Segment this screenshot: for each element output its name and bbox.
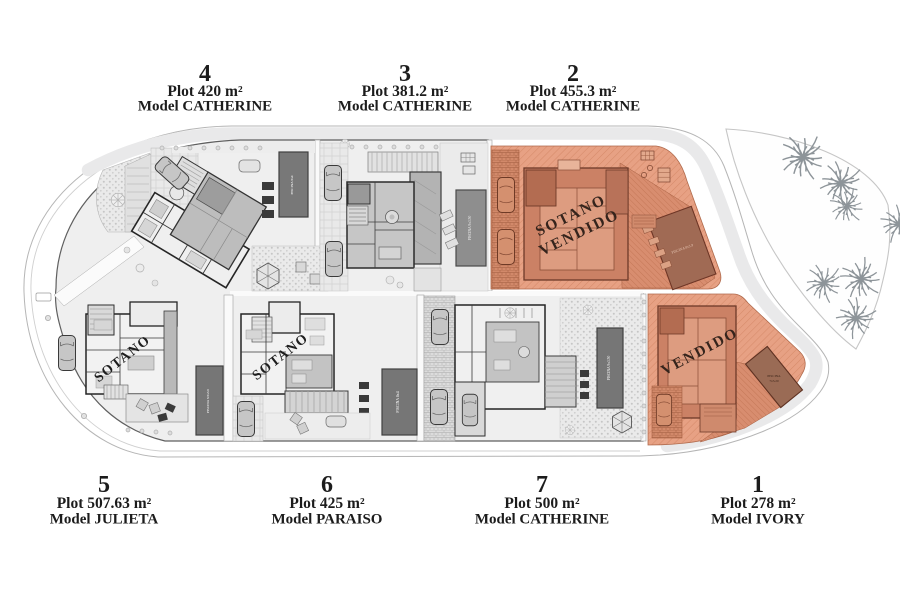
svg-text:7x3.20: 7x3.20 (769, 379, 779, 383)
svg-text:Model PARAISO: Model PARAISO (272, 512, 383, 528)
svg-text:Plot 455.3 m²: Plot 455.3 m² (530, 83, 617, 100)
svg-text:Plot 500 m²: Plot 500 m² (504, 495, 580, 512)
svg-text:Model CATHERINE: Model CATHERINE (138, 99, 272, 115)
svg-text:Model IVORY: Model IVORY (711, 512, 805, 528)
svg-text:PISCINA 9x3.50: PISCINA 9x3.50 (607, 356, 611, 381)
svg-text:Plot 420 m²: Plot 420 m² (167, 83, 243, 100)
svg-text:PISCINA: PISCINA (767, 374, 781, 378)
svg-text:Model CATHERINE: Model CATHERINE (506, 99, 640, 115)
svg-text:Plot 425 m²: Plot 425 m² (289, 495, 365, 512)
svg-text:Model JULIETA: Model JULIETA (50, 512, 159, 528)
svg-text:Plot 278 m²: Plot 278 m² (720, 495, 796, 512)
svg-text:Model CATHERINE: Model CATHERINE (338, 99, 472, 115)
svg-text:PISCINA 9x3.50: PISCINA 9x3.50 (468, 216, 472, 241)
svg-text:Plot 507.63 m²: Plot 507.63 m² (57, 495, 152, 512)
svg-text:PISCINA 8.8x3.6: PISCINA 8.8x3.6 (206, 389, 210, 413)
svg-text:Model CATHERINE: Model CATHERINE (475, 512, 609, 528)
svg-text:Plot 381.2 m²: Plot 381.2 m² (362, 83, 449, 100)
svg-text:PISCINA 8x4: PISCINA 8x4 (396, 391, 400, 412)
svg-text:PISCINA 8x4: PISCINA 8x4 (290, 175, 294, 194)
